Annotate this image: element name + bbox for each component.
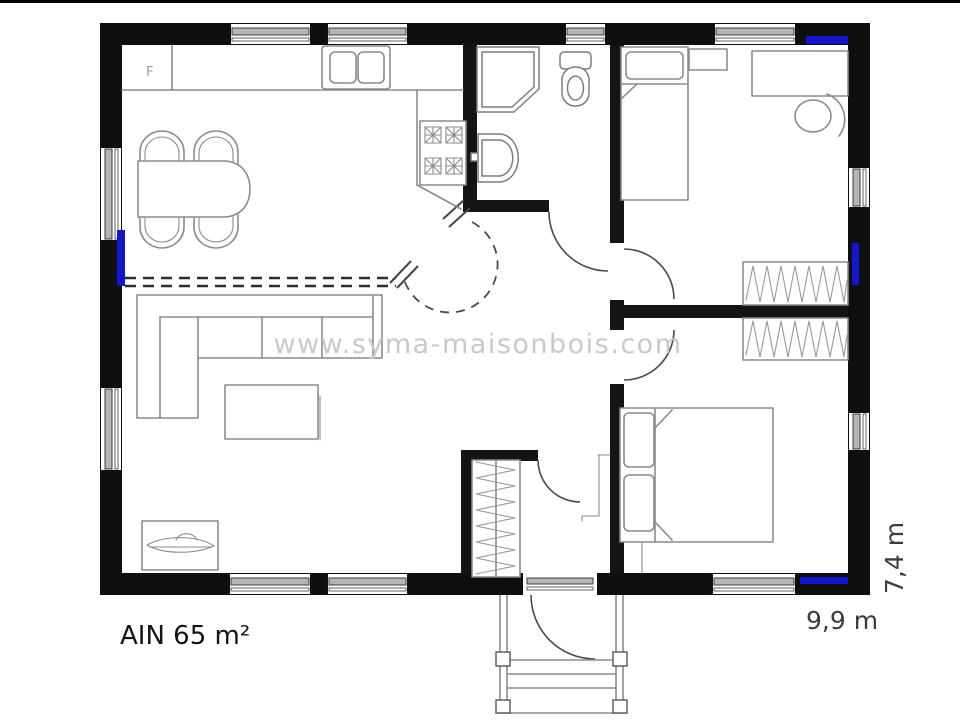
- floor-plan-screenshot: F www.syma-maisonbois.com AIN 65 m² 9,9 …: [0, 0, 960, 720]
- bedroom1-door-swing: [624, 249, 674, 299]
- entry-closet-icon: [472, 460, 520, 577]
- coffee-table-icon: [225, 385, 320, 440]
- kitchen-counter-diagonal: [417, 185, 461, 209]
- kitchen-sink-icon: [322, 46, 390, 89]
- highlight-bottom-right: [800, 577, 848, 584]
- hall-door-swing: [538, 460, 580, 502]
- porch-steps: [496, 595, 627, 713]
- wall-bathroom-bottom: [463, 200, 549, 212]
- highlight-top-right: [806, 36, 848, 44]
- dimension-depth-label: 7,4 m: [880, 522, 909, 594]
- wall-right: [848, 23, 870, 595]
- desk-chair-icon: [795, 94, 845, 136]
- shower-icon: [477, 47, 539, 112]
- bathroom-area: [471, 47, 591, 182]
- window-dining-left: [101, 145, 121, 243]
- window-living-1: [227, 574, 313, 594]
- window-kitchen-2: [325, 24, 410, 44]
- fridge-label: F: [146, 65, 153, 80]
- toilet-icon: [560, 52, 591, 106]
- wardrobe-bedroom1-icon: [743, 262, 848, 305]
- window-bedroom2-right: [849, 410, 869, 453]
- double-bed-icon: [620, 408, 773, 542]
- wall-between-bedrooms: [624, 305, 848, 318]
- dimension-width-label: 9,9 m: [806, 606, 878, 635]
- highlight-right: [852, 243, 859, 285]
- kitchen-area: [122, 45, 466, 248]
- nightstand-icon: [689, 49, 727, 70]
- entrance-door-swing: [531, 595, 595, 659]
- wall-entry-closet-left: [461, 450, 472, 573]
- cooktop-icon: [420, 121, 466, 185]
- image-top-border: [0, 0, 960, 3]
- window-bedroom2-bottom: [710, 574, 798, 594]
- plan-area-label: AIN 65 m²: [120, 621, 250, 651]
- tv-cabinet-icon: [142, 521, 218, 570]
- bathroom-door-swing: [549, 212, 608, 271]
- window-living-2: [325, 574, 410, 594]
- floor-plan-canvas: F www.syma-maisonbois.com AIN 65 m² 9,9 …: [0, 0, 960, 720]
- watermark-text: www.syma-maisonbois.com: [273, 329, 682, 360]
- entry-hall-area: [472, 455, 610, 577]
- highlight-left: [117, 230, 125, 286]
- hall-fixture: [582, 455, 610, 521]
- window-bedroom1-top: [712, 24, 798, 44]
- single-bed-icon: [621, 47, 688, 200]
- desk-icon: [752, 51, 848, 96]
- bedroom1-area: [621, 47, 848, 305]
- window-bedroom1-right: [849, 165, 869, 210]
- washbasin-icon: [471, 134, 518, 182]
- window-living-left: [101, 385, 121, 473]
- dining-table-icon: [138, 161, 250, 217]
- window-bathroom: [563, 24, 608, 44]
- wall-left: [100, 23, 122, 595]
- entrance-threshold: [523, 573, 597, 595]
- wall-hall-center-block: [610, 300, 624, 330]
- wardrobe-bedroom2-icon: [743, 318, 848, 360]
- window-kitchen-1: [228, 24, 313, 44]
